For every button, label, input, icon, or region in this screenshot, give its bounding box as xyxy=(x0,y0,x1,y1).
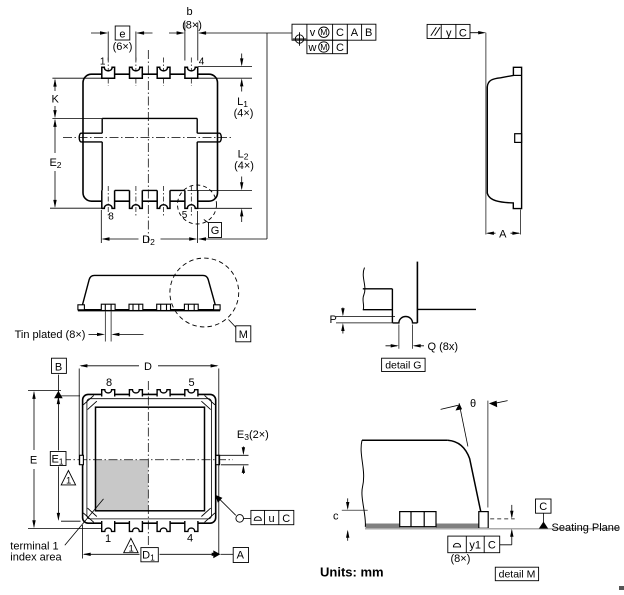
svg-text:w: w xyxy=(308,42,317,54)
svg-text:y1: y1 xyxy=(469,540,481,552)
svg-text:E3(2×): E3(2×) xyxy=(237,429,269,442)
svg-text:B: B xyxy=(55,362,62,374)
svg-text:4: 4 xyxy=(187,533,193,545)
svg-text:Units: mm: Units: mm xyxy=(320,565,384,580)
svg-text:1: 1 xyxy=(105,533,111,545)
svg-text:Tin plated (8×): Tin plated (8×) xyxy=(15,329,86,341)
svg-text:8: 8 xyxy=(106,377,112,389)
svg-text:(8×): (8×) xyxy=(451,553,471,565)
svg-text:C: C xyxy=(488,540,496,552)
svg-text:A: A xyxy=(351,27,359,39)
svg-text:(4×): (4×) xyxy=(234,160,254,172)
svg-text:v: v xyxy=(310,27,316,39)
svg-text:K: K xyxy=(52,94,60,106)
svg-text:c: c xyxy=(333,511,339,523)
svg-text:1: 1 xyxy=(66,476,71,487)
svg-text:detail G: detail G xyxy=(385,359,421,371)
svg-text:C: C xyxy=(282,513,290,525)
svg-text:(8×): (8×) xyxy=(182,20,202,32)
svg-text:A: A xyxy=(499,228,507,240)
svg-text:1: 1 xyxy=(100,57,106,68)
svg-text:8: 8 xyxy=(108,212,114,223)
svg-text:θ: θ xyxy=(470,398,476,410)
svg-text:Q (8x): Q (8x) xyxy=(428,341,459,353)
svg-text:G: G xyxy=(211,225,220,237)
svg-text:y: y xyxy=(446,27,452,39)
svg-text:C: C xyxy=(539,501,547,513)
svg-text:D: D xyxy=(144,361,152,373)
svg-text:M: M xyxy=(320,27,327,37)
svg-text:B: B xyxy=(365,27,372,39)
svg-text:(6×): (6×) xyxy=(113,41,133,53)
svg-text:e: e xyxy=(119,28,125,40)
svg-text:detail M: detail M xyxy=(499,568,536,580)
svg-text:M: M xyxy=(239,329,248,341)
svg-text:C: C xyxy=(459,27,467,39)
svg-text:A: A xyxy=(237,549,245,561)
svg-text:1: 1 xyxy=(128,543,133,554)
svg-text:index area: index area xyxy=(10,552,62,564)
svg-text:C: C xyxy=(336,42,344,54)
svg-text:b: b xyxy=(186,6,192,18)
svg-text:u: u xyxy=(269,513,275,525)
svg-text:4: 4 xyxy=(199,57,205,68)
svg-text:5: 5 xyxy=(188,377,194,389)
svg-text:M: M xyxy=(320,42,327,52)
svg-text:C: C xyxy=(336,27,344,39)
svg-text:P: P xyxy=(330,314,337,326)
svg-text:Seating Plane: Seating Plane xyxy=(552,522,621,534)
svg-text:E: E xyxy=(30,455,37,467)
svg-text:(4×): (4×) xyxy=(234,108,254,120)
